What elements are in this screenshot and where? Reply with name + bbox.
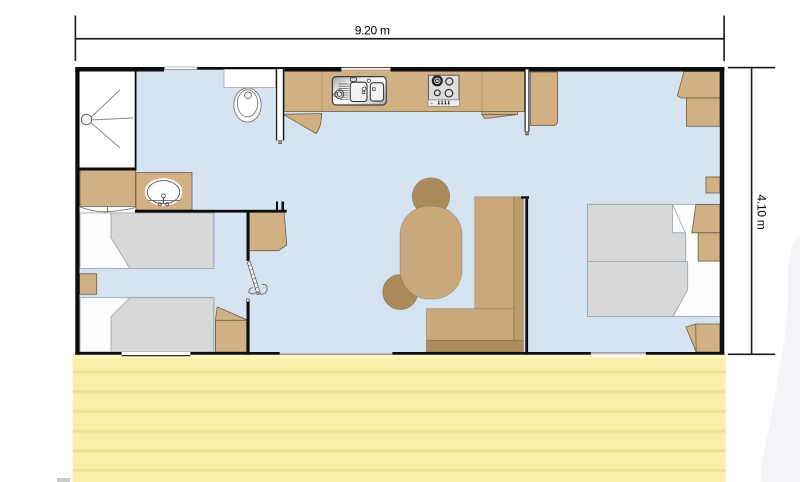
svg-text:4.10 m: 4.10 m	[755, 195, 769, 230]
svg-text:+: +	[430, 101, 433, 107]
svg-text:9.20 m: 9.20 m	[355, 24, 390, 38]
